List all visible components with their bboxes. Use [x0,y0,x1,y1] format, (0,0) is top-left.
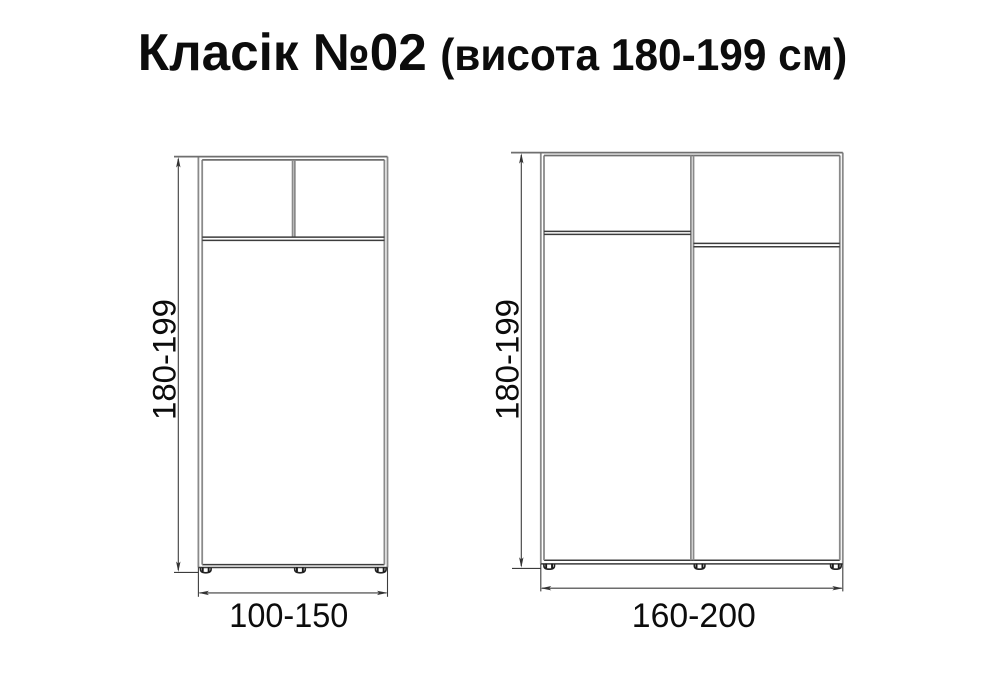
svg-text:(висота 180-199 см): (висота 180-199 см) [440,31,847,80]
svg-text:180-199: 180-199 [147,299,183,420]
svg-text:100-150: 100-150 [229,597,348,635]
svg-text:160-200: 160-200 [632,597,756,635]
svg-text:Класік №02: Класік №02 [138,24,427,82]
svg-text:180-199: 180-199 [490,299,526,420]
